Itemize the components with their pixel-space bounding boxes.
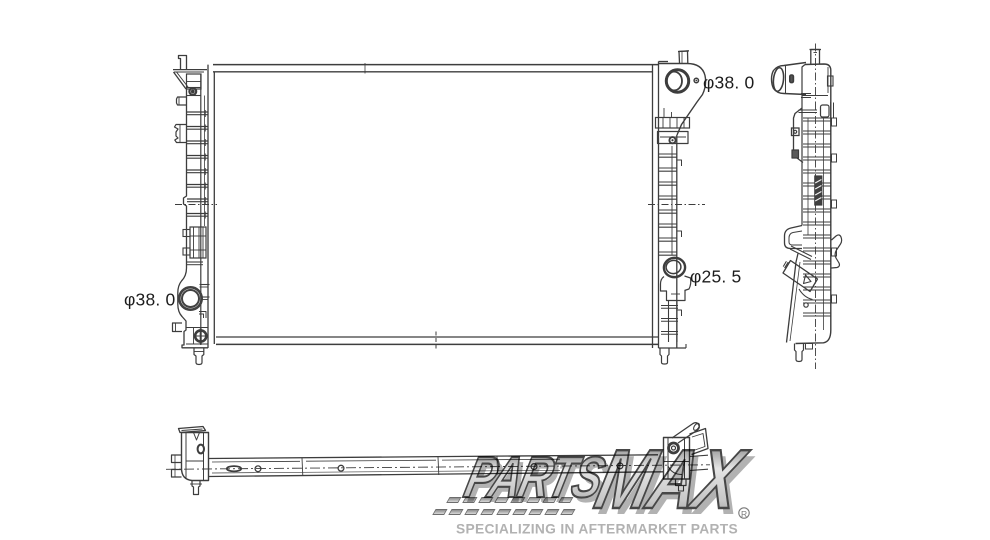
svg-text:φ38. 0: φ38. 0	[124, 290, 176, 310]
svg-text:R: R	[741, 509, 747, 519]
svg-text:SPECIALIZING IN AFTERMARKET PA: SPECIALIZING IN AFTERMARKET PARTS	[456, 522, 738, 537]
svg-text:φ38. 0: φ38. 0	[703, 73, 755, 93]
svg-text:φ25. 5: φ25. 5	[690, 267, 741, 287]
